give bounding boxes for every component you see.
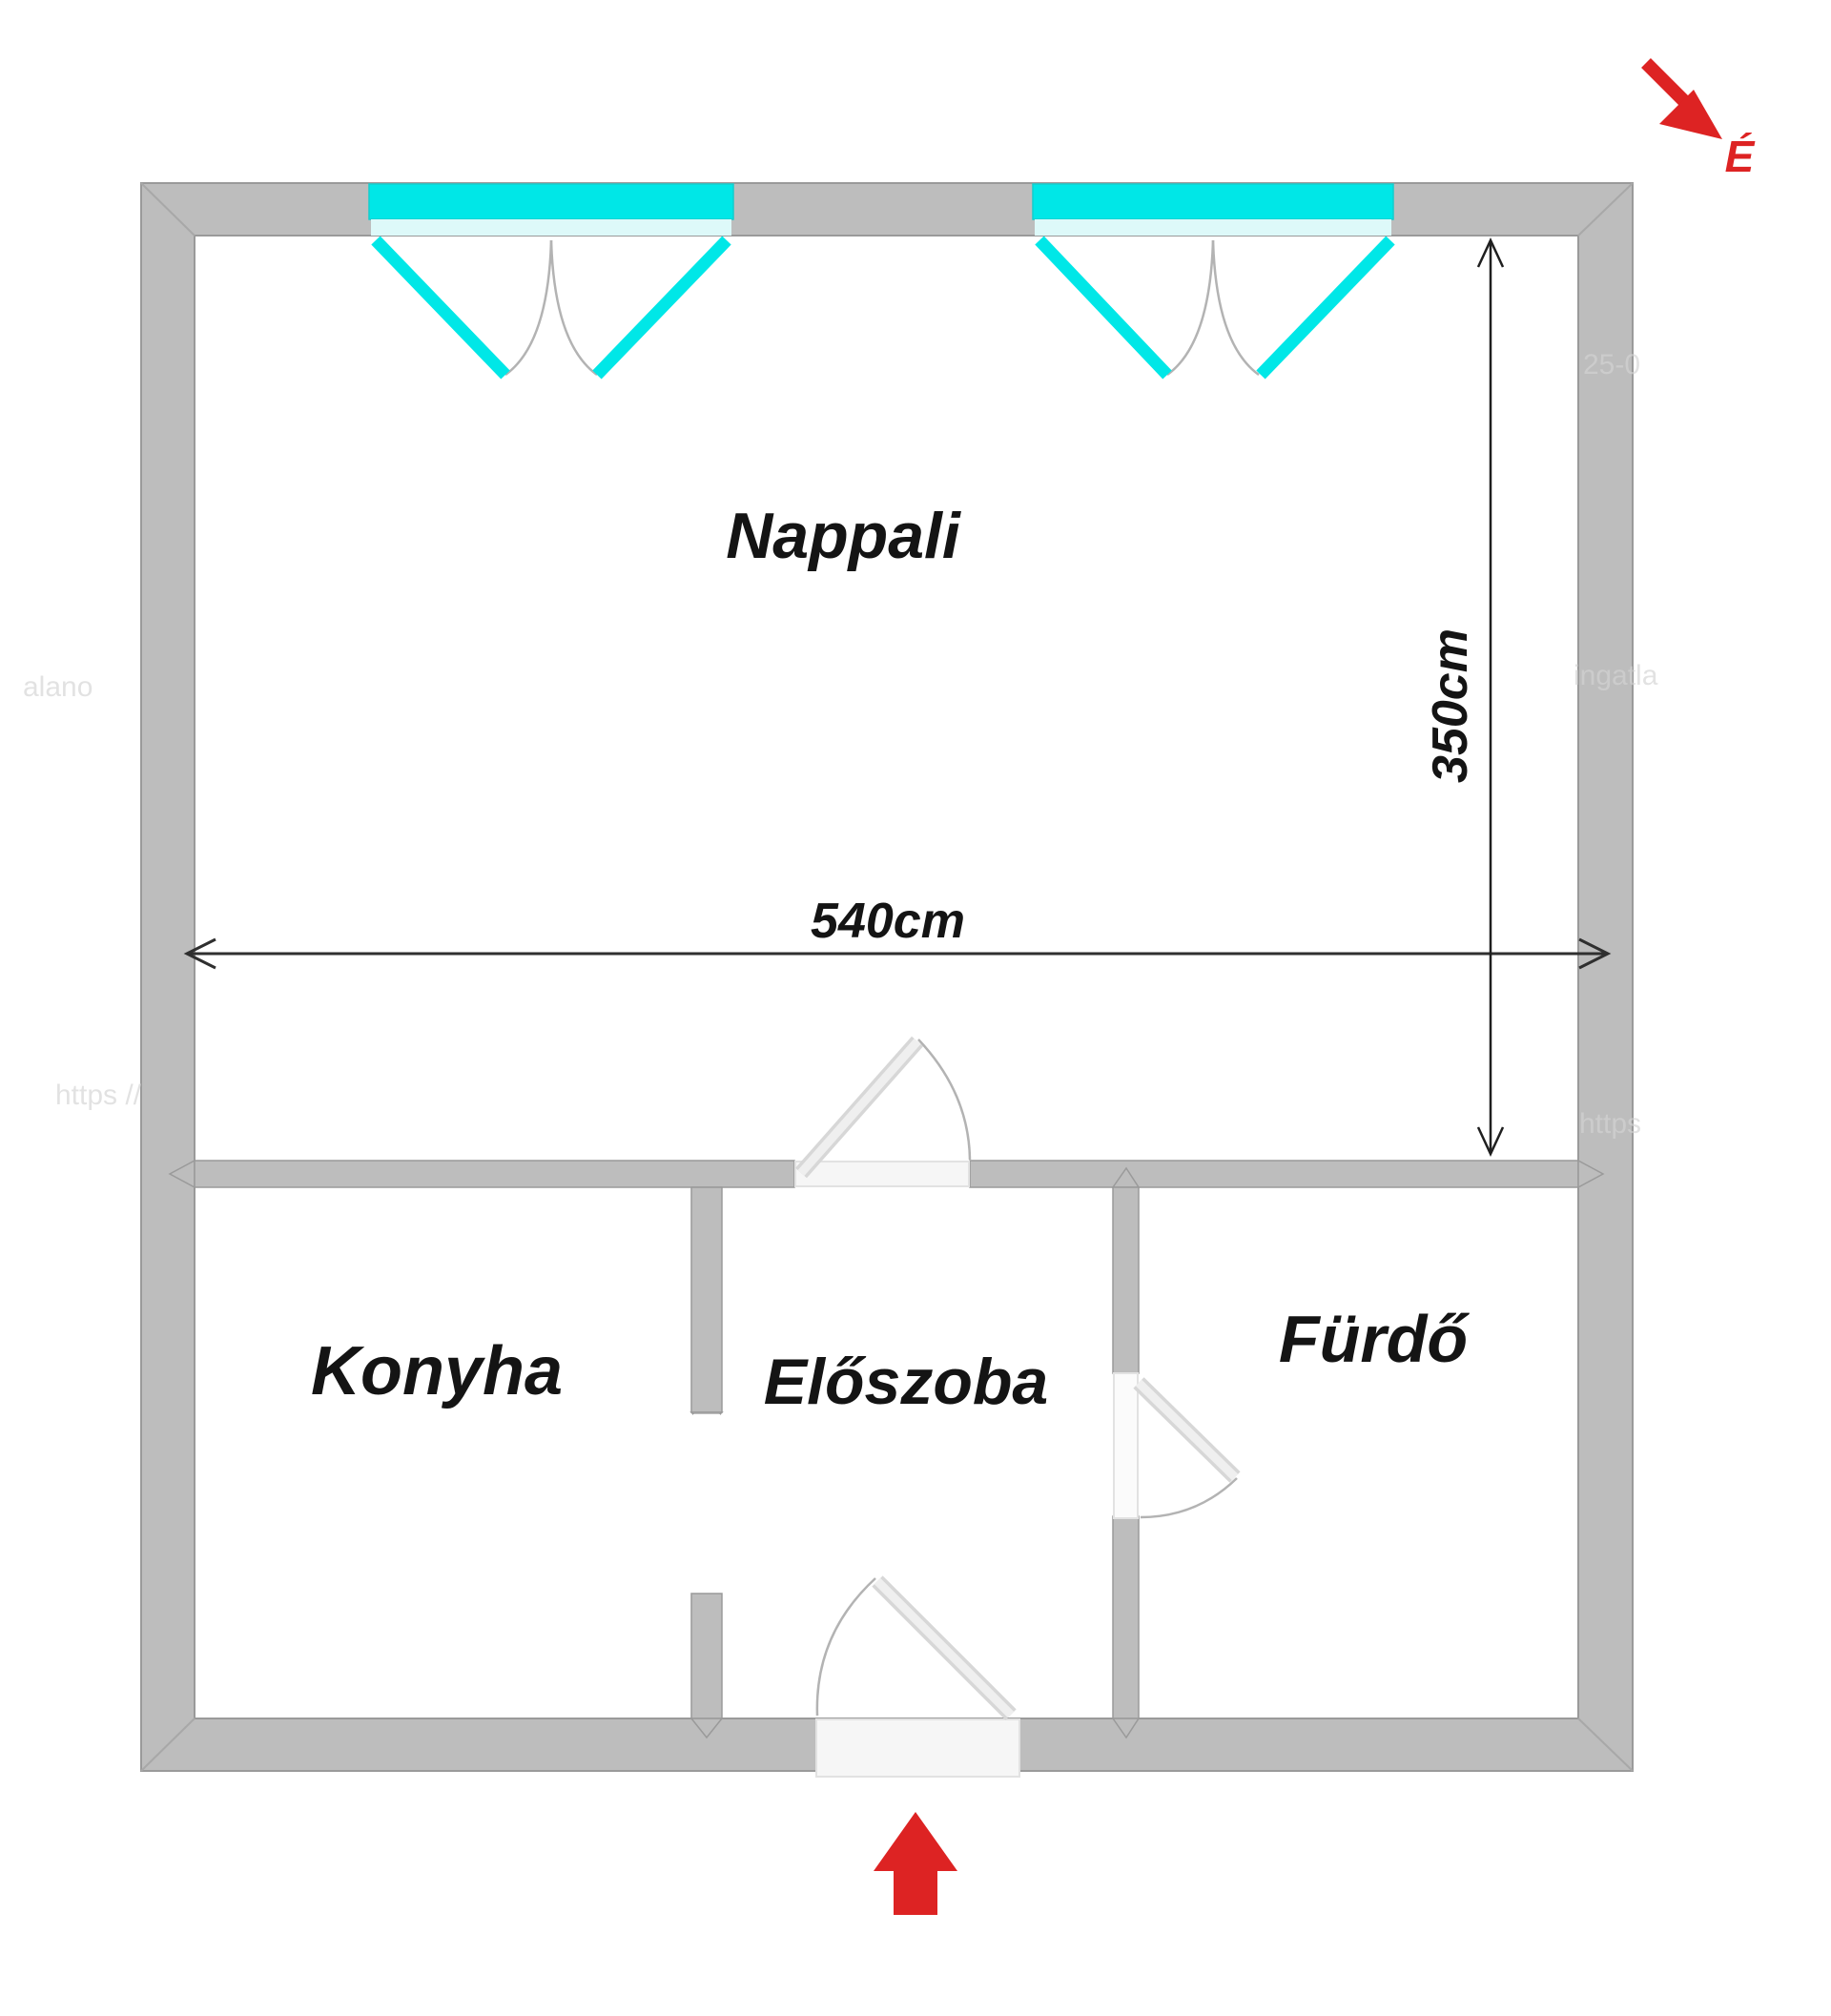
window-casement-left xyxy=(1039,240,1167,375)
window-casement-right xyxy=(597,240,727,375)
window-glass xyxy=(1035,219,1391,236)
watermark: ingatla xyxy=(1574,660,1658,691)
floor-plan-canvas: 540cm 350cm Nappali Konyha Előszoba Fürd… xyxy=(0,0,1831,2016)
door-nappali xyxy=(795,1039,970,1186)
window-frame xyxy=(1033,184,1393,219)
window-casement-right xyxy=(1261,240,1390,375)
dimension-width: 540cm xyxy=(187,894,1608,968)
entrance-arrow-icon xyxy=(874,1812,957,1915)
room-label-furdo: Fürdő xyxy=(1279,1302,1471,1376)
door-furdo xyxy=(1114,1373,1237,1518)
door-leaf-face xyxy=(801,1041,917,1173)
room-label-nappali: Nappali xyxy=(726,500,962,572)
door-swing-arc xyxy=(817,1578,875,1716)
watermark: https xyxy=(1579,1108,1641,1140)
watermark: alano xyxy=(23,671,93,703)
window-swing-arc-right xyxy=(551,240,597,375)
door-swing-arc xyxy=(1141,1478,1237,1517)
door-leaf-face xyxy=(1139,1383,1235,1477)
room-label-eloszoba: Előszoba xyxy=(764,1346,1049,1418)
watermark: https // xyxy=(55,1080,142,1111)
opening-konyha xyxy=(693,1414,720,1592)
window-left xyxy=(369,184,733,375)
window-swing-arc-right xyxy=(1213,240,1259,375)
door-entrance xyxy=(816,1578,1019,1777)
door-threshold xyxy=(795,1162,969,1186)
dimension-height: 350cm xyxy=(1423,240,1503,1154)
door-threshold xyxy=(816,1719,1019,1777)
window-swing-arc-left xyxy=(505,240,551,375)
watermark: 25-0 xyxy=(1583,349,1640,381)
window-glass xyxy=(371,219,731,236)
door-jamb xyxy=(1114,1373,1138,1518)
window-right xyxy=(1033,184,1393,375)
window-casement-left xyxy=(376,240,505,375)
exterior-walls xyxy=(141,183,1633,1771)
door-swing-arc xyxy=(918,1039,970,1160)
window-swing-arc-left xyxy=(1167,240,1213,375)
north-arrow-icon xyxy=(1646,63,1722,139)
door-leaf-face xyxy=(877,1581,1011,1715)
window-frame xyxy=(369,184,733,219)
north-label: É xyxy=(1725,132,1756,181)
dimension-height-label: 350cm xyxy=(1423,628,1478,783)
room-label-konyha: Konyha xyxy=(311,1333,563,1409)
dimension-width-label: 540cm xyxy=(811,894,965,949)
